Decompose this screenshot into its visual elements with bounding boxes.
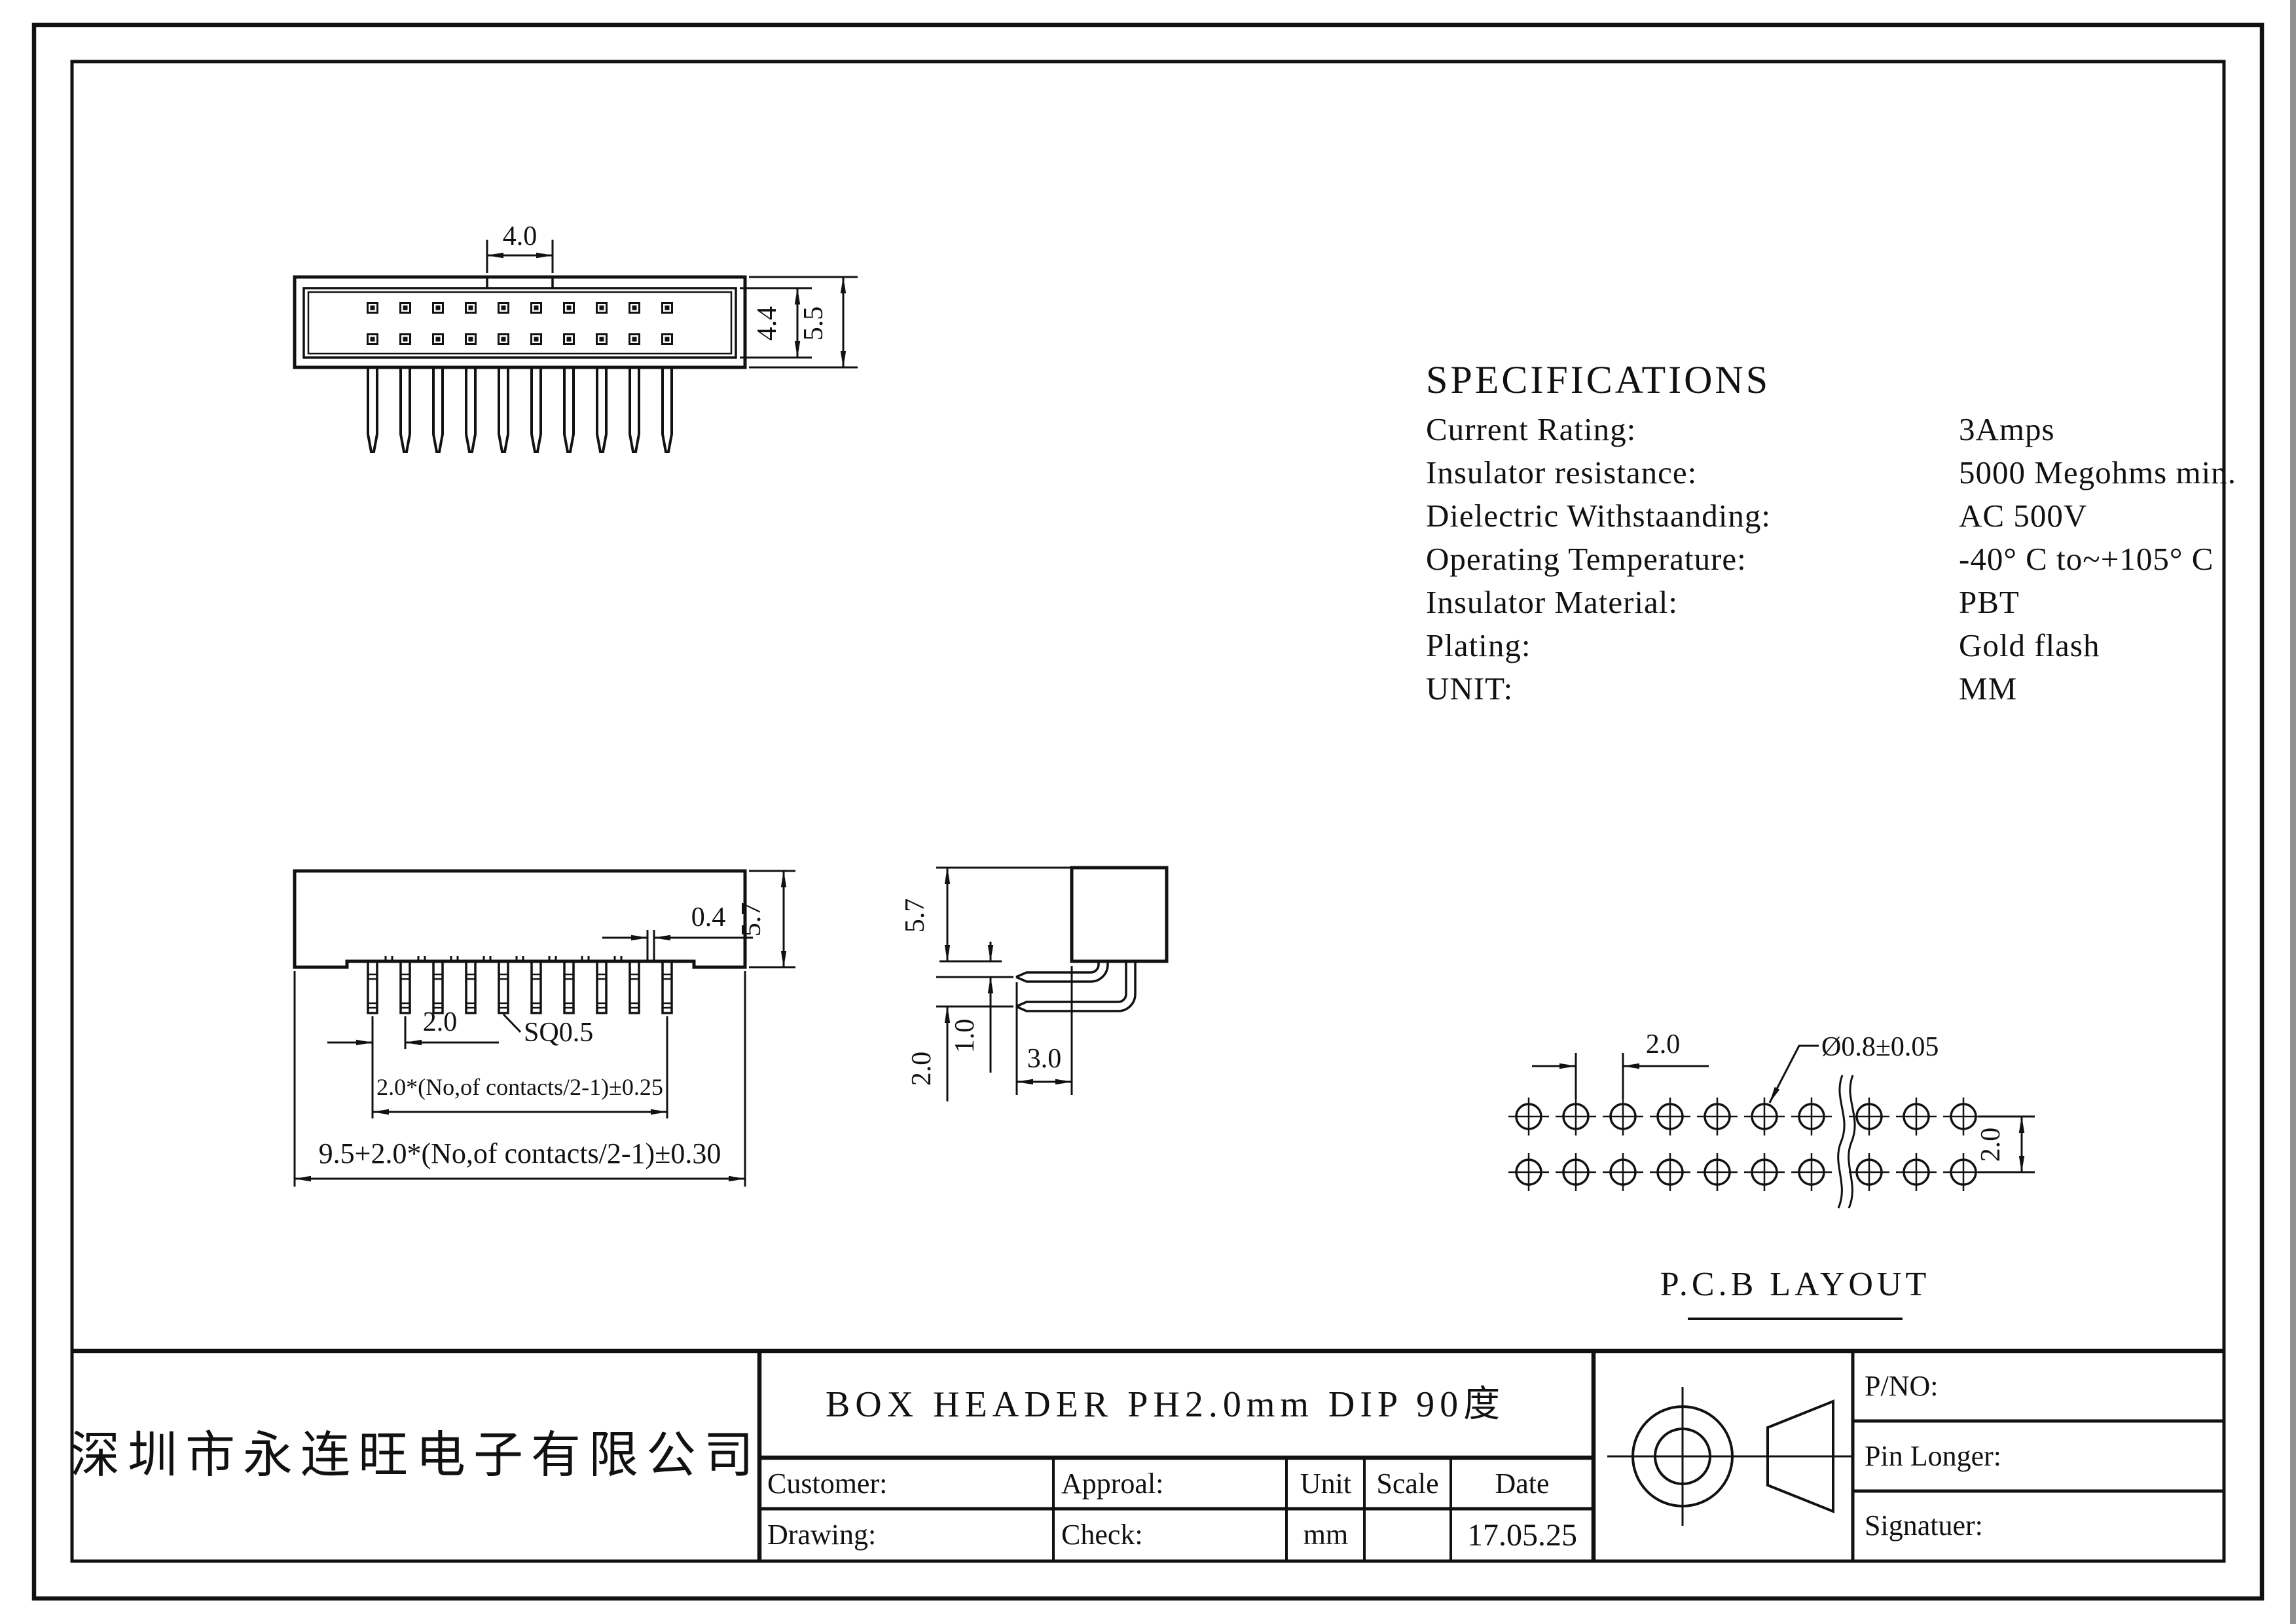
pin-tail	[597, 367, 606, 452]
dim-label-span-formula: 2.0*(No,of contacts/2-1)±0.25	[376, 1074, 663, 1100]
contact-center	[469, 306, 473, 310]
dim-row-pitch: 2.0	[907, 1006, 947, 1101]
spec-value: MM	[1959, 671, 2017, 707]
break-line	[1838, 1075, 1844, 1208]
top-view-pin-tails	[368, 367, 672, 452]
dim-hole-pitch: 2.0	[1532, 1029, 1709, 1099]
contact-center	[436, 337, 441, 342]
pin-tail	[368, 367, 377, 452]
title-block: 深圳市永连旺电子有限公司 BOX HEADER PH2.0mm DIP 90度 …	[70, 1351, 2224, 1561]
dim-label-hole-dia: Ø0.8±0.05	[1821, 1032, 1939, 1062]
contact-center	[632, 337, 637, 342]
spec-value: 3Amps	[1959, 411, 2055, 447]
front-pin	[499, 961, 508, 1013]
dim-label-4.0: 4.0	[503, 221, 538, 251]
dim-label-total-formula: 9.5+2.0*(No,of contacts/2-1)±0.30	[319, 1137, 721, 1170]
dim-label-4.4: 4.4	[752, 306, 782, 341]
contact-center	[600, 337, 604, 342]
spec-value: PBT	[1959, 584, 2020, 620]
spec-value: Gold flash	[1959, 627, 2100, 663]
contact-center	[501, 337, 506, 342]
contact-center	[534, 306, 539, 310]
spec-label: UNIT:	[1426, 671, 1513, 707]
contact-center	[600, 306, 604, 310]
dim-tail-length: 3.0	[1017, 966, 1072, 1095]
pno-label: P/NO:	[1865, 1370, 1938, 1402]
contact-center	[403, 306, 408, 310]
dim-label-row-2.0: 2.0	[907, 1052, 937, 1086]
front-pin	[368, 961, 377, 1013]
pin-longer-label: Pin Longer:	[1865, 1440, 2001, 1472]
pcb-hole-field	[1508, 1098, 1984, 1191]
dim-label-3.0: 3.0	[1027, 1044, 1062, 1074]
front-pin	[466, 961, 475, 1013]
side-view-upper-pin	[1016, 961, 1108, 982]
dim-tab-width: 4.0	[487, 221, 553, 273]
spec-value: 5000 Megohms min.	[1959, 454, 2236, 490]
front-view: 0.4 5.7 2.0 SQ0.5 2.0*(No,of contacts/2	[295, 871, 795, 1187]
dim-label-hole-pitch: 2.0	[1646, 1029, 1681, 1060]
pcb-layout-title: P.C.B LAYOUT	[1660, 1266, 1931, 1303]
spec-value: AC 500V	[1959, 498, 2087, 534]
drawing-label: Drawing:	[767, 1519, 876, 1551]
contact-center	[469, 337, 473, 342]
pin-tail	[564, 367, 574, 452]
drawing-sheet: 4.0 4.4 5.5 0.4	[0, 0, 2296, 1624]
contact-center	[534, 337, 539, 342]
pin-tail	[663, 367, 672, 452]
side-view-body	[1072, 868, 1167, 961]
outer-frame	[34, 25, 2262, 1598]
spec-label: Current Rating:	[1426, 411, 1636, 447]
front-pin	[663, 961, 672, 1013]
customer-label: Customer:	[767, 1467, 887, 1500]
approal-label: Approal:	[1061, 1467, 1163, 1500]
pin-tail	[630, 367, 639, 452]
signatuer-label: Signatuer:	[1865, 1509, 1983, 1541]
front-pin	[597, 961, 606, 1013]
top-view: 4.0 4.4 5.5	[295, 221, 858, 452]
specifications: SPECIFICATIONS Current Rating: 3Amps Ins…	[1426, 358, 2236, 707]
border-frame	[34, 0, 2296, 1624]
unit-value: mm	[1303, 1519, 1348, 1551]
contact-center	[665, 337, 670, 342]
scan-edge-strip	[2290, 0, 2296, 1624]
spec-title: SPECIFICATIONS	[1426, 358, 1770, 401]
spec-label: Insulator Material:	[1426, 584, 1678, 620]
dim-label-row-pitch: 2.0	[1976, 1128, 2006, 1162]
date-value: 17.05.25	[1467, 1518, 1577, 1553]
pin-tail	[433, 367, 443, 452]
dim-label-front-5.7: 5.7	[737, 902, 767, 937]
spec-label: Dielectric Withstaanding:	[1426, 498, 1771, 534]
engineering-drawing: 4.0 4.4 5.5 0.4	[0, 0, 2296, 1624]
dim-label-0.4: 0.4	[691, 902, 726, 932]
dim-label-side-5.7: 5.7	[900, 898, 930, 933]
pin-square-callout: SQ0.5	[503, 1014, 593, 1048]
dim-label-1.0: 1.0	[950, 1019, 980, 1054]
pin-tail	[466, 367, 475, 452]
spec-label: Operating Temperature:	[1426, 541, 1747, 577]
company-name: 深圳市永连旺电子有限公司	[70, 1428, 761, 1483]
top-view-contact-field	[368, 303, 672, 344]
dim-label-5.5: 5.5	[799, 306, 829, 341]
contact-center	[665, 306, 670, 310]
contact-center	[436, 306, 441, 310]
dim-hole-row-pitch: 2.0	[1976, 1116, 2035, 1172]
spec-label: Plating:	[1426, 627, 1531, 663]
dim-standoff-notch: 0.4	[602, 902, 753, 961]
dim-side-height: 5.7	[900, 868, 947, 961]
contact-center	[501, 306, 506, 310]
front-pin	[532, 961, 541, 1013]
scale-label: Scale	[1376, 1467, 1438, 1500]
hole-dia-callout: Ø0.8±0.05	[1770, 1032, 1939, 1103]
pin-tail	[499, 367, 508, 452]
side-view: 5.7 1.0 2.0 3.0	[900, 868, 1167, 1101]
pin-tail	[401, 367, 410, 452]
projection-symbol	[1607, 1387, 1854, 1526]
top-view-body-inner	[304, 288, 736, 358]
date-label: Date	[1495, 1467, 1549, 1500]
side-view-lower-pin	[1016, 961, 1135, 1011]
pin-tail	[532, 367, 541, 452]
pcb-layout: 2.0 Ø0.8±0.05 2.0 P.C.B LAYOUT	[1508, 1029, 2035, 1319]
contact-center	[632, 306, 637, 310]
contact-center	[567, 306, 572, 310]
contact-center	[371, 337, 375, 342]
inner-frame	[72, 62, 2224, 1561]
unit-label: Unit	[1300, 1467, 1351, 1500]
front-view-body	[295, 871, 745, 967]
spec-value: -40° C to~+105° C	[1959, 541, 2214, 577]
contact-center	[403, 337, 408, 342]
front-view-pins	[368, 956, 672, 1013]
front-pin	[630, 961, 639, 1013]
front-pin	[401, 961, 410, 1013]
contact-center	[567, 337, 572, 342]
check-label: Check:	[1061, 1519, 1143, 1551]
front-pin	[564, 961, 574, 1013]
drawing-title: BOX HEADER PH2.0mm DIP 90度	[826, 1384, 1505, 1425]
break-line	[1849, 1075, 1855, 1208]
dim-label-pitch-2.0: 2.0	[423, 1007, 458, 1037]
dim-label-sq0.5: SQ0.5	[524, 1018, 593, 1048]
contact-center	[371, 306, 375, 310]
spec-label: Insulator resistance:	[1426, 454, 1697, 490]
front-pin	[433, 961, 443, 1013]
